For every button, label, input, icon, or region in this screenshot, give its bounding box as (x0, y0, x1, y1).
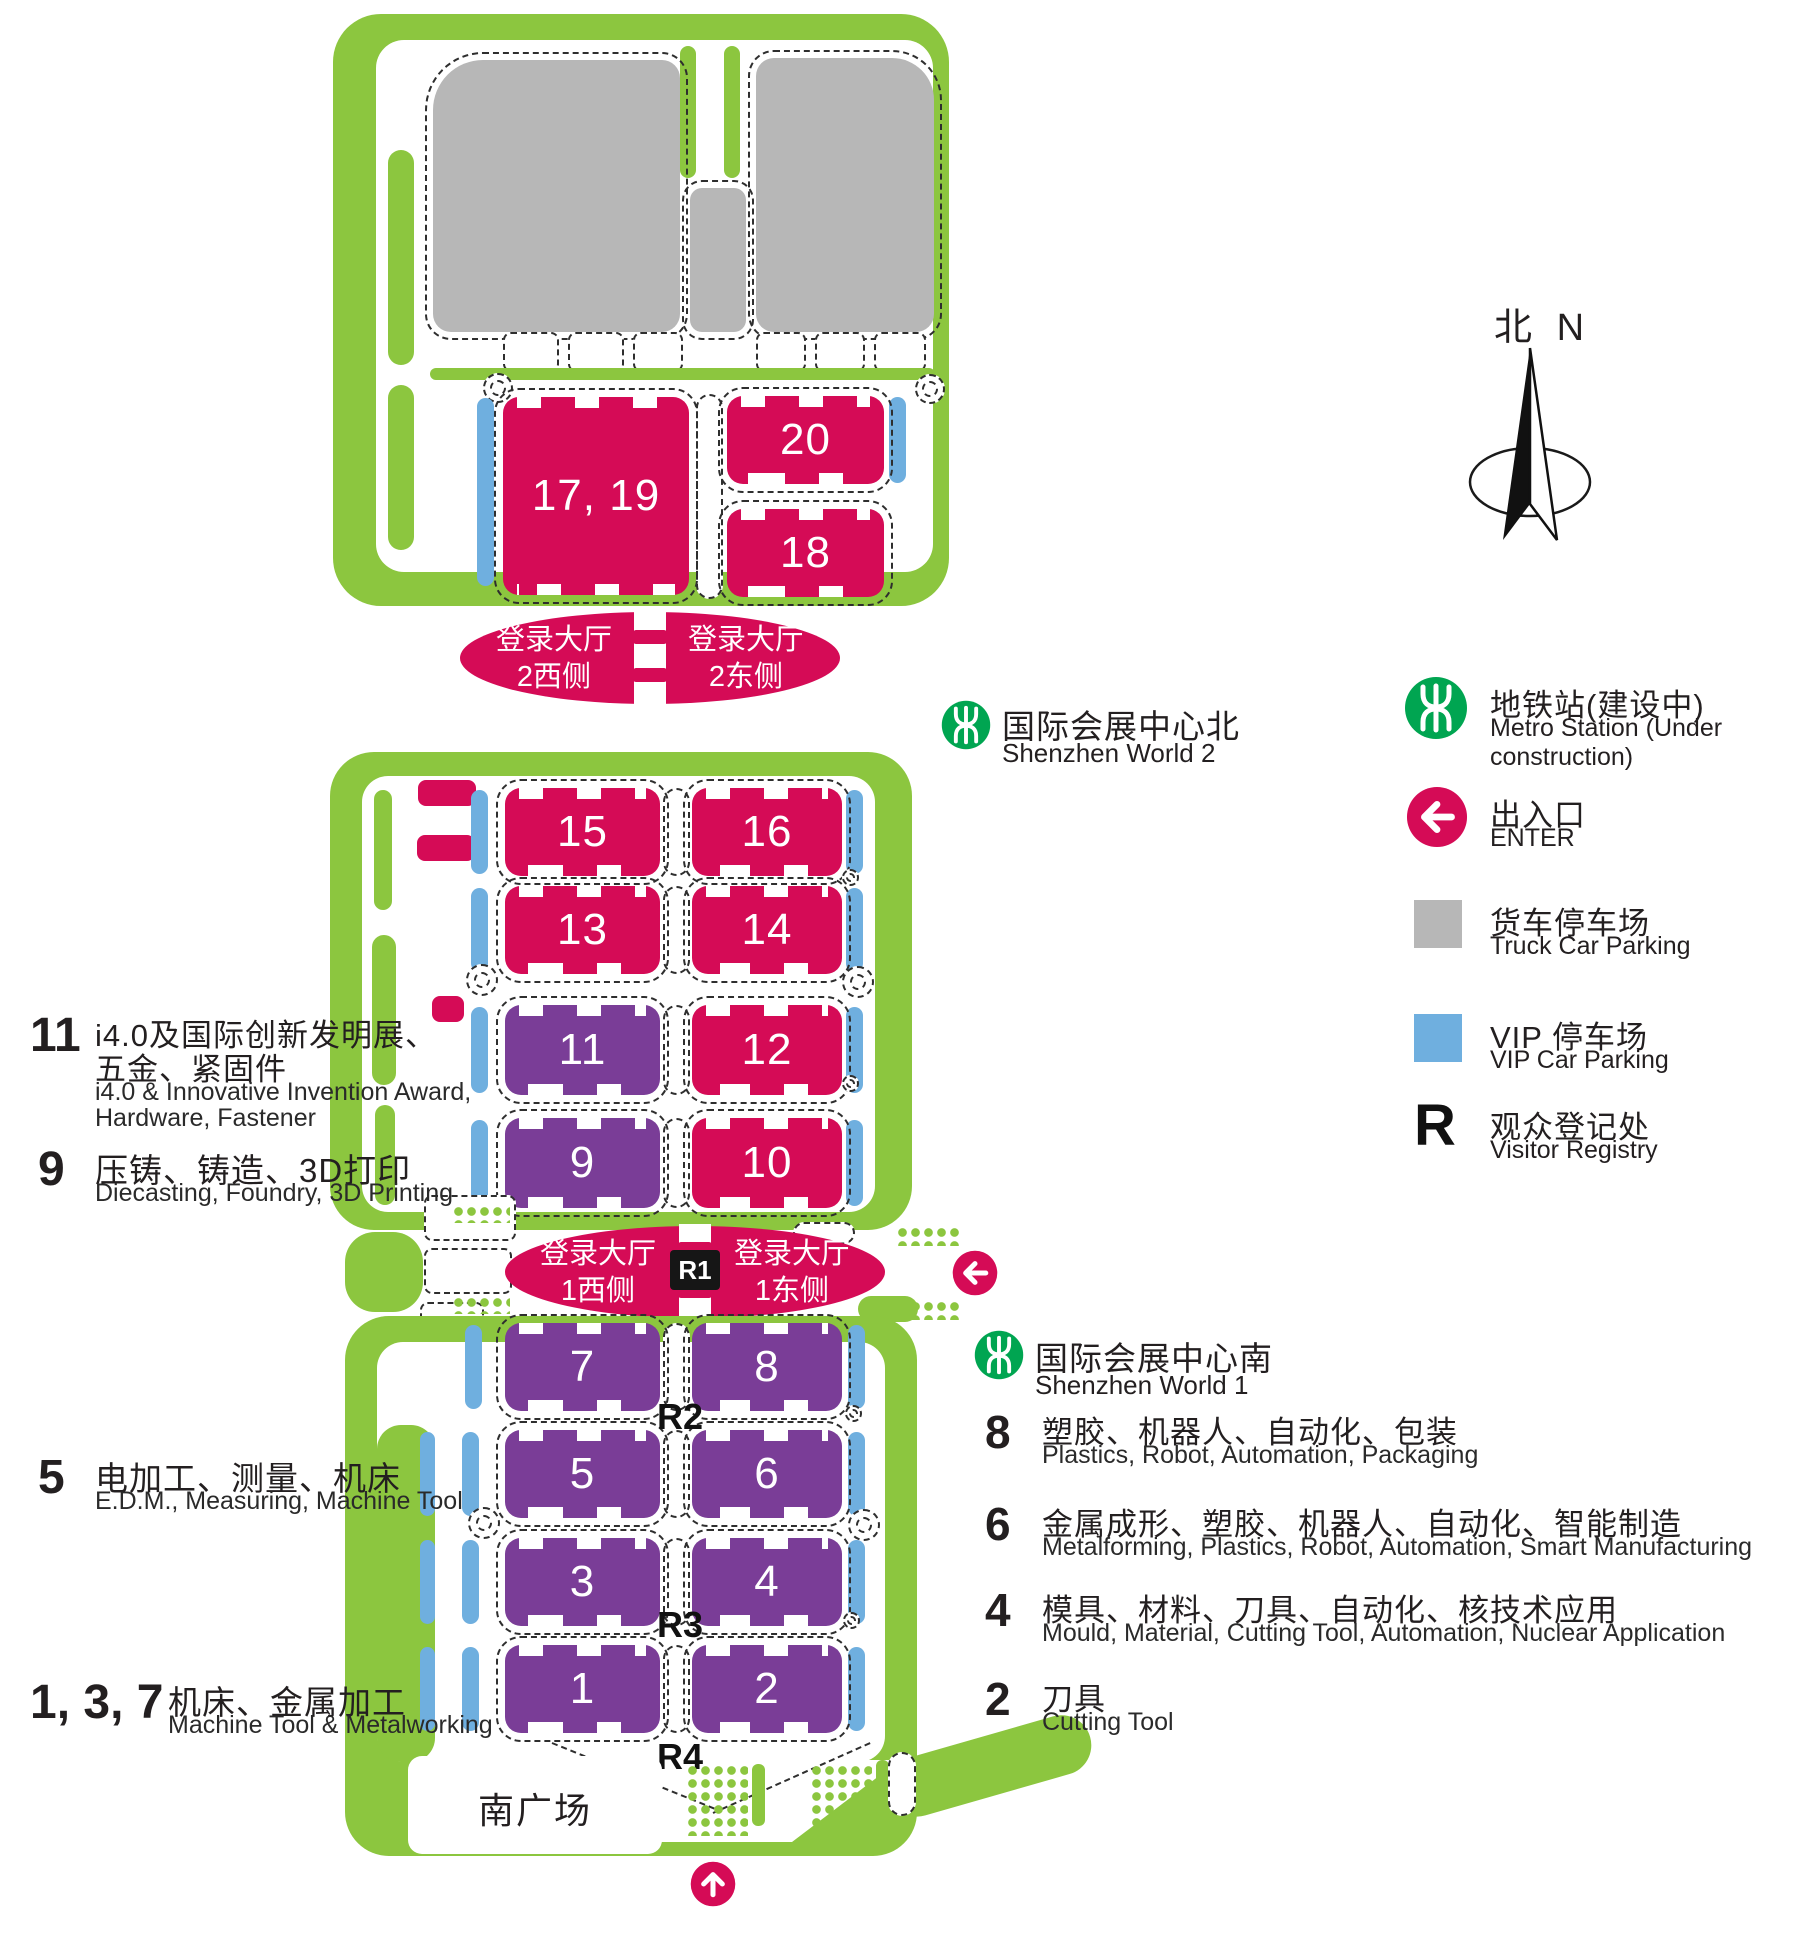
hall-14: 14 (692, 886, 842, 974)
category-8-en: Plastics, Robot, Automation, Packaging (1042, 1441, 1478, 1470)
planting-dots (810, 1764, 872, 1836)
vip-parking-strip (462, 1432, 479, 1516)
category-4-en: Mould, Material, Cutting Tool, Automatio… (1042, 1619, 1725, 1648)
lobby-1-east-label: 登录大厅 1东侧 (716, 1236, 868, 1310)
green-landscape (724, 46, 740, 178)
hall-18: 18 (727, 509, 884, 597)
vip-parking-strip (846, 888, 863, 972)
hall-4: 4 (692, 1538, 842, 1626)
planting-dots (452, 1296, 510, 1314)
legend-registry-symbol: R (1414, 1092, 1456, 1159)
planting-dots (686, 1764, 748, 1836)
hall-16: 16 (692, 788, 842, 876)
dashed-road (696, 394, 723, 599)
roundabout (842, 869, 859, 886)
hall-9: 9 (505, 1118, 660, 1208)
dashed-road (663, 1005, 690, 1095)
vip-parking-strip (471, 888, 488, 972)
lobby-2-link (633, 630, 667, 644)
lobby-2-east-label: 登录大厅 2东侧 (670, 622, 822, 696)
hall-label: 20 (780, 415, 831, 465)
category-137-number: 1, 3, 7 (30, 1675, 163, 1730)
vip-parking-strip (848, 1432, 865, 1516)
category-6-en: Metalforming, Plastics, Robot, Automatio… (1042, 1533, 1752, 1562)
north-compass-icon (1465, 342, 1595, 552)
truck-parking-area (756, 58, 934, 332)
planting-dots (896, 1226, 960, 1246)
loading-dock (874, 332, 926, 372)
dashed-road (424, 1248, 512, 1294)
vip-parking-strip (846, 1120, 863, 1206)
lobby-2-west-label: 登录大厅 2西侧 (478, 622, 630, 696)
truck-parking-area (690, 188, 746, 332)
hall-label: 17, 19 (532, 471, 660, 521)
green-landscape (374, 790, 392, 910)
loading-dock (568, 332, 624, 372)
category-137-en: Machine Tool & Metalworking (168, 1711, 493, 1740)
roundabout (842, 1075, 859, 1092)
legend-metro-icon (1404, 676, 1468, 740)
service-building (417, 835, 475, 861)
hall-17-19: 17, 19 (503, 397, 689, 595)
legend-vip-swatch (1414, 1014, 1462, 1062)
dashed-road (663, 788, 690, 876)
truck-parking-area (433, 60, 680, 332)
hall-8: 8 (692, 1323, 842, 1411)
road-label-r3: R3 (657, 1604, 703, 1646)
service-building (418, 780, 476, 806)
legend-enter-en: ENTER (1490, 824, 1575, 853)
roundabout (845, 1405, 862, 1422)
hall-10: 10 (692, 1118, 842, 1208)
roundabout (466, 964, 498, 996)
metro-icon (974, 1330, 1024, 1380)
vip-parking-strip (848, 1325, 865, 1409)
roundabout (468, 1507, 500, 1539)
vip-parking-strip (471, 1007, 488, 1093)
category-11-en2: Hardware, Fastener (95, 1104, 316, 1133)
roundabout (848, 1509, 880, 1541)
category-5-number: 5 (38, 1450, 65, 1505)
vip-parking-strip (477, 398, 494, 586)
planting-dots (452, 1205, 510, 1223)
dashed-road (663, 1118, 690, 1208)
hall-15: 15 (505, 788, 660, 876)
category-2-en: Cutting Tool (1042, 1708, 1174, 1737)
lobby-2-link (633, 668, 667, 682)
metro-icon (941, 700, 991, 750)
registry-point-r1: R1 (670, 1250, 720, 1290)
loading-dock (503, 332, 559, 372)
legend-metro-en: Metro Station (Under construction) (1490, 714, 1800, 772)
vip-parking-strip (471, 1120, 488, 1206)
lobby-2-divider (634, 610, 666, 706)
category-11-en: i4.0 & Innovative Invention Award, (95, 1078, 471, 1107)
loading-dock (756, 332, 806, 372)
vip-parking-strip (889, 397, 906, 483)
lobby-1-west-label: 登录大厅 1西侧 (522, 1236, 674, 1310)
hall-2: 2 (692, 1645, 842, 1733)
enter-arrow-icon (952, 1250, 998, 1296)
road-label-r2: R2 (657, 1396, 703, 1438)
legend-truck-en: Truck Car Parking (1490, 932, 1691, 961)
roundabout (842, 966, 874, 998)
vip-parking-strip (465, 1325, 482, 1409)
station-world2-en: Shenzhen World 2 (1002, 738, 1215, 769)
hall-13: 13 (505, 886, 660, 974)
roundabout (915, 374, 945, 404)
hall-11: 11 (505, 1005, 660, 1095)
dashed-road (663, 1645, 690, 1733)
hall-20: 20 (727, 396, 884, 484)
dashed-road (663, 886, 690, 974)
green-landscape (388, 150, 414, 365)
planting-dots (896, 1300, 960, 1320)
hall-label: 18 (780, 528, 831, 578)
green-landscape (752, 1764, 765, 1826)
category-6-number: 6 (985, 1497, 1011, 1551)
dashed-road (888, 1752, 916, 1816)
loading-dock (633, 332, 683, 372)
dashed-road (663, 1430, 690, 1518)
legend-vip-en: VIP Car Parking (1490, 1046, 1669, 1075)
loading-dock (815, 332, 865, 372)
category-9-number: 9 (38, 1142, 65, 1197)
south-plaza-label: 南广场 (408, 1782, 662, 1834)
legend-enter-icon (1406, 786, 1468, 848)
legend-registry-en: Visitor Registry (1490, 1136, 1658, 1165)
category-9-en: Diecasting, Foundry, 3D Printing (95, 1179, 453, 1208)
vip-parking-strip (848, 1647, 865, 1731)
vip-parking-strip (846, 790, 863, 874)
category-4-number: 4 (985, 1583, 1011, 1637)
green-landscape (680, 46, 696, 178)
category-5-en: E.D.M., Measuring, Machine Tool (95, 1487, 463, 1516)
hall-12: 12 (692, 1005, 842, 1095)
category-2-number: 2 (985, 1672, 1011, 1726)
green-landscape (345, 1232, 423, 1312)
roundabout (843, 1612, 860, 1629)
station-world1-en: Shenzhen World 1 (1035, 1370, 1248, 1401)
hall-1: 1 (505, 1645, 660, 1733)
hall-7: 7 (505, 1323, 660, 1411)
hall-5: 5 (505, 1430, 660, 1518)
legend-truck-swatch (1414, 900, 1462, 948)
hall-3: 3 (505, 1538, 660, 1626)
vip-parking-strip (471, 790, 488, 874)
exhibition-venue-map: 17, 19 20 18 登录大厅 2西侧 登录大厅 2东侧 国际会展中心北 S… (0, 0, 1800, 1948)
vip-parking-strip (462, 1540, 479, 1624)
category-8-number: 8 (985, 1405, 1011, 1459)
hall-6: 6 (692, 1430, 842, 1518)
category-11-number: 11 (30, 1008, 81, 1063)
vip-parking-strip (420, 1540, 435, 1624)
green-landscape (388, 385, 414, 550)
south-entrance-arrow-icon (690, 1861, 736, 1907)
